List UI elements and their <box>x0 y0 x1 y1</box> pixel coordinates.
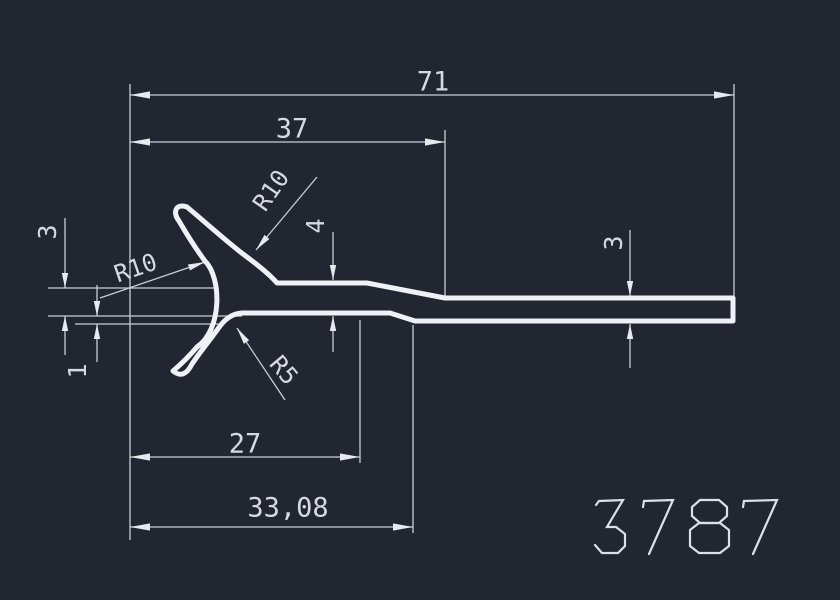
radius-label-r10-upper: R10 <box>247 165 295 217</box>
dimension-arrow <box>130 138 150 145</box>
part-number-glyph <box>643 500 673 554</box>
dim-label-27: 27 <box>229 429 262 460</box>
dimension-arrow <box>130 523 150 530</box>
dimension-arrow <box>714 91 734 98</box>
dim-label-71: 71 <box>417 67 450 98</box>
dimension-arrow <box>62 316 68 331</box>
part-number-glyph <box>743 500 777 554</box>
radius-label-r10-left: R10 <box>111 248 161 289</box>
dimension-arrow <box>425 138 445 145</box>
radius-label-r5: R5 <box>264 350 304 390</box>
cad-canvas: 71372733,084331R10R10R5 <box>0 0 840 600</box>
dim-label-4: 4 <box>301 218 330 233</box>
dimension-arrow <box>340 453 360 460</box>
dimension-arrow <box>627 324 633 339</box>
drawing-page: 71372733,084331R10R10R5 <box>0 0 840 600</box>
dim-label-33-08: 33,08 <box>247 493 328 524</box>
part-number-glyph <box>692 500 727 523</box>
dim-label-3-left: 3 <box>33 224 62 239</box>
dimension-arrow <box>393 523 413 530</box>
dim-label-37: 37 <box>276 114 309 145</box>
profile-outline <box>173 206 733 374</box>
dimension-arrow <box>130 91 150 98</box>
part-number-glyph <box>690 523 729 553</box>
dim-label-3-right: 3 <box>599 235 628 250</box>
dimension-arrow <box>234 326 249 344</box>
dim-label-1: 1 <box>63 363 92 378</box>
dimension-arrow <box>94 324 100 339</box>
dimension-arrow <box>62 273 68 288</box>
dimension-arrow <box>330 316 336 331</box>
dimension-arrow <box>94 301 100 316</box>
part-number-glyph <box>595 500 625 553</box>
dimension-arrow <box>130 453 150 460</box>
dimension-arrow <box>627 281 633 296</box>
part-number <box>595 500 777 554</box>
dimension-arrow <box>330 265 336 280</box>
